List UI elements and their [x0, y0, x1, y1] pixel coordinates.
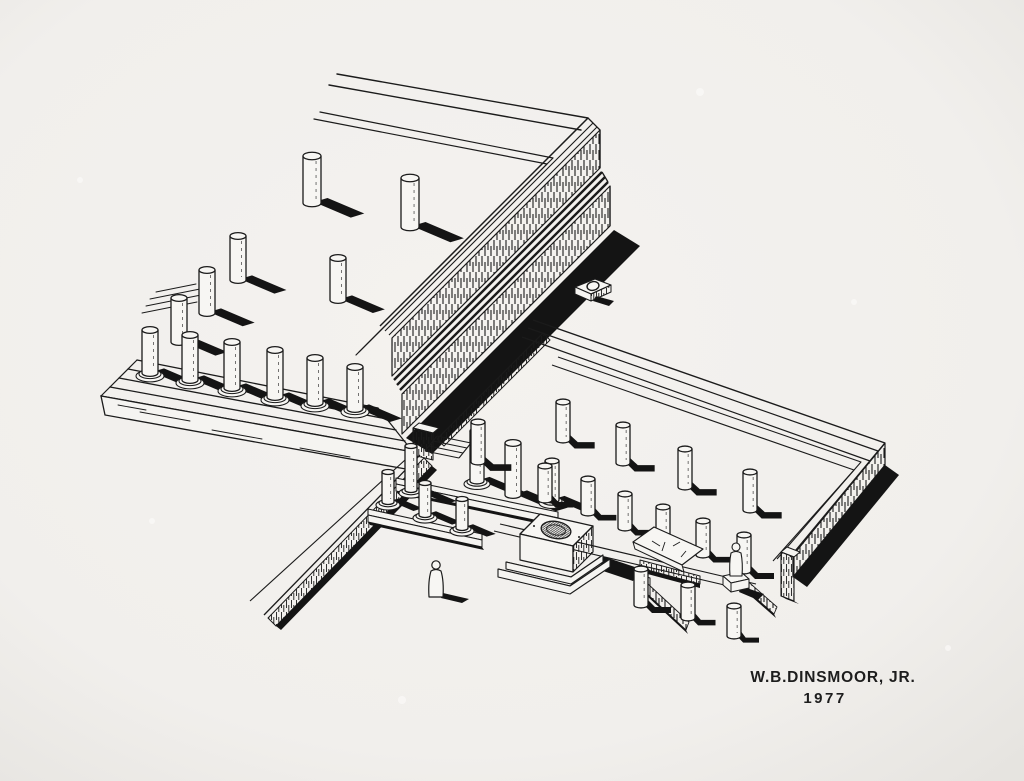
column-drum-top	[382, 469, 394, 474]
altar-dowel-hole	[533, 525, 535, 527]
column-drum-top	[182, 332, 198, 339]
gate-pier-face	[781, 552, 794, 601]
column-drum-top	[618, 491, 632, 497]
drawing-page: W.B.DINSMOOR, JR. 1977	[0, 0, 1024, 781]
column-drum-top	[401, 174, 419, 182]
signature-year: 1977	[803, 690, 846, 707]
column-drum-top	[456, 496, 468, 501]
figure-body	[429, 570, 444, 598]
column-drum-body	[182, 335, 198, 383]
column-drum-body	[727, 606, 741, 639]
column-drum-top	[199, 267, 215, 274]
column-drum-body	[456, 499, 468, 531]
column-drum-top	[696, 518, 710, 524]
altar-dowel-hole	[578, 536, 580, 538]
column-drum-top	[634, 566, 648, 572]
column-drum-body	[471, 422, 485, 465]
column-drum-top	[224, 339, 240, 346]
column-drum-body	[616, 425, 630, 466]
column-drum-top	[171, 295, 187, 302]
column-drum-top	[681, 582, 695, 588]
column-drum-top	[347, 364, 363, 371]
column-drum-top	[616, 422, 630, 428]
column-drum-body	[634, 569, 648, 608]
column-drum-top	[727, 603, 741, 609]
column-drum-body	[743, 472, 757, 513]
column-drum-body	[382, 472, 394, 505]
column-drum-body	[230, 236, 246, 283]
column-drum-body	[556, 402, 570, 443]
column-drum-top	[538, 463, 552, 469]
column-drum-top	[303, 152, 321, 160]
column-drum-body	[405, 446, 417, 493]
column-drum-body	[419, 483, 431, 518]
column-drum-body	[681, 585, 695, 621]
column-drum-top	[471, 419, 485, 425]
column-drum-body	[267, 350, 283, 400]
column-drum-body	[678, 449, 692, 490]
column-drum-top	[267, 347, 283, 354]
column-drum-body	[142, 330, 158, 376]
column-drum-top	[419, 480, 431, 485]
column-drum-body	[618, 494, 632, 531]
column-drum-top	[678, 446, 692, 452]
column-drum-body	[330, 258, 346, 303]
column-drum-top	[581, 476, 595, 482]
column-drum-body	[538, 466, 552, 503]
column-drum-body	[307, 358, 323, 406]
column-drum-body	[303, 156, 321, 207]
column-drum-top	[307, 355, 323, 362]
figure-head	[432, 561, 440, 569]
column-drum-top	[505, 440, 521, 447]
statue-body	[730, 552, 743, 577]
column-drum-top	[405, 443, 417, 448]
signature-name: W.B.DINSMOOR, JR.	[750, 669, 915, 686]
column-drum-top	[230, 233, 246, 240]
column-drum-top	[330, 255, 346, 262]
column-drum-top	[142, 327, 158, 334]
axonometric-reconstruction-drawing: W.B.DINSMOOR, JR. 1977	[0, 0, 1024, 781]
column-drum-body	[581, 479, 595, 516]
column-drum-body	[199, 270, 215, 316]
column-drum-top	[743, 469, 757, 475]
column-drum-top	[656, 504, 670, 510]
column-drum-top	[556, 399, 570, 405]
statue-head	[732, 543, 740, 551]
column-drum-body	[224, 342, 240, 391]
column-drum-top	[737, 532, 751, 538]
column-drum-body	[401, 178, 419, 231]
column-drum-body	[347, 367, 363, 412]
